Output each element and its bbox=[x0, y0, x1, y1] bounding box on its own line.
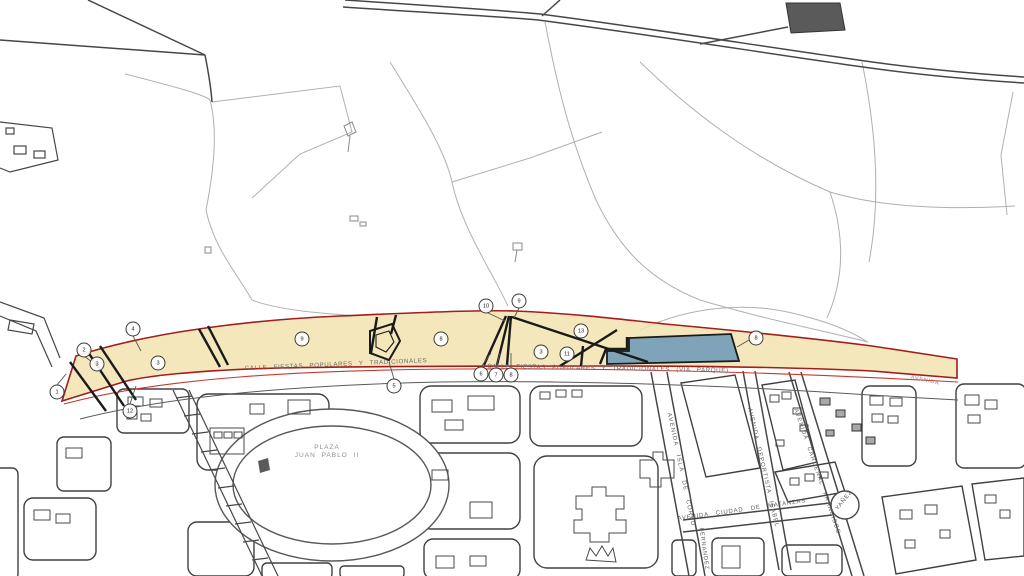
parcel-marker-3: 3 bbox=[90, 357, 105, 372]
parcel-marker-10: 10 bbox=[479, 299, 494, 314]
parcel-marker-12: 12 bbox=[123, 404, 138, 419]
parcel-marker-9: 9 bbox=[295, 332, 310, 347]
parcel-marker-2: 2 bbox=[77, 343, 92, 358]
parcel-marker-13: 13 bbox=[574, 324, 589, 339]
parcel-marker-11: 11 bbox=[560, 347, 575, 362]
parcel-marker-8: 8 bbox=[749, 331, 764, 346]
roundabout bbox=[831, 491, 859, 519]
parcel-marker-6: 6 bbox=[474, 367, 489, 382]
parcel-marker-3: 3 bbox=[534, 345, 549, 360]
parcel-marker-5: 5 bbox=[387, 379, 402, 394]
building-footprint-topright bbox=[786, 3, 845, 33]
parcel-marker-1: 1 bbox=[50, 385, 65, 400]
parcel-marker-8: 8 bbox=[504, 368, 519, 383]
parcel-marker-7: 7 bbox=[489, 368, 504, 383]
parcel-marker-8: 8 bbox=[434, 332, 449, 347]
plaza-ring bbox=[215, 409, 449, 561]
top-roads bbox=[0, 0, 1024, 102]
map-artwork bbox=[0, 0, 1024, 576]
parcel-marker-9: 9 bbox=[512, 294, 527, 309]
left-edge-structures bbox=[0, 122, 60, 367]
parcel-marker-4: 4 bbox=[126, 322, 141, 337]
parcel-marker-3: 3 bbox=[151, 356, 166, 371]
planning-map: CALLE FIESTAS POPULARES Y TRADICIONALESC… bbox=[0, 0, 1024, 576]
